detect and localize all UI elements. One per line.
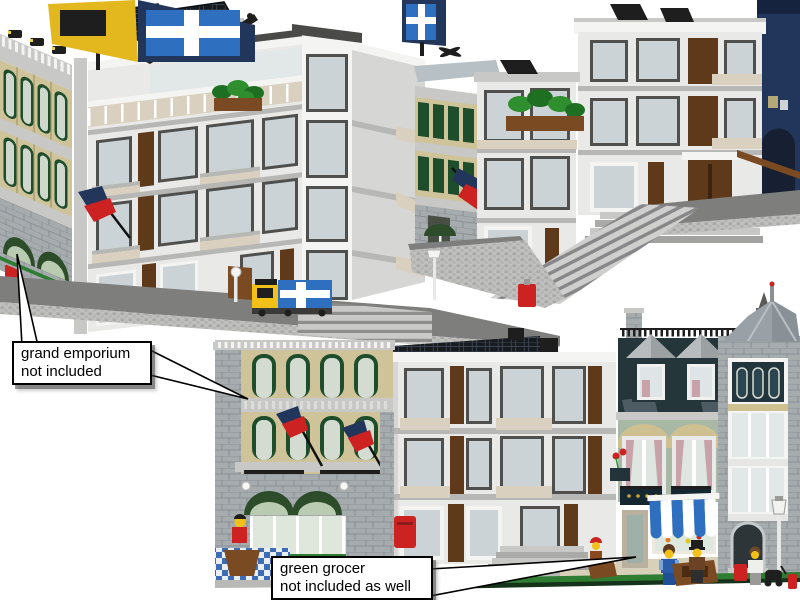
fire-hydrant [788,574,797,589]
red-suitcase [734,564,747,581]
lego-scene [0,0,800,600]
callout-grand-emporium: grand emporium not included [12,341,152,385]
green-grocer [610,282,800,581]
callout-green-grocer-line1: green grocer [280,560,425,578]
striped-awning [647,493,720,539]
terrace-planter [506,116,584,131]
callout-grand-emporium-line2: not included [21,363,144,381]
bay-window-turret [718,282,800,581]
annotated-lego-render: grand emporium not included green grocer… [0,0,800,600]
mailbox-bottom [394,516,416,548]
billboard-back [402,0,462,59]
corner-glass-tower [292,24,362,306]
minifig-tophat-man [689,540,705,583]
grand-emporium-bottom [213,340,416,580]
callout-green-grocer: green grocer not included as well [271,556,433,600]
callout-grand-emporium-line1: grand emporium [21,345,144,363]
callout-green-grocer-line2: not included as well [280,578,425,596]
